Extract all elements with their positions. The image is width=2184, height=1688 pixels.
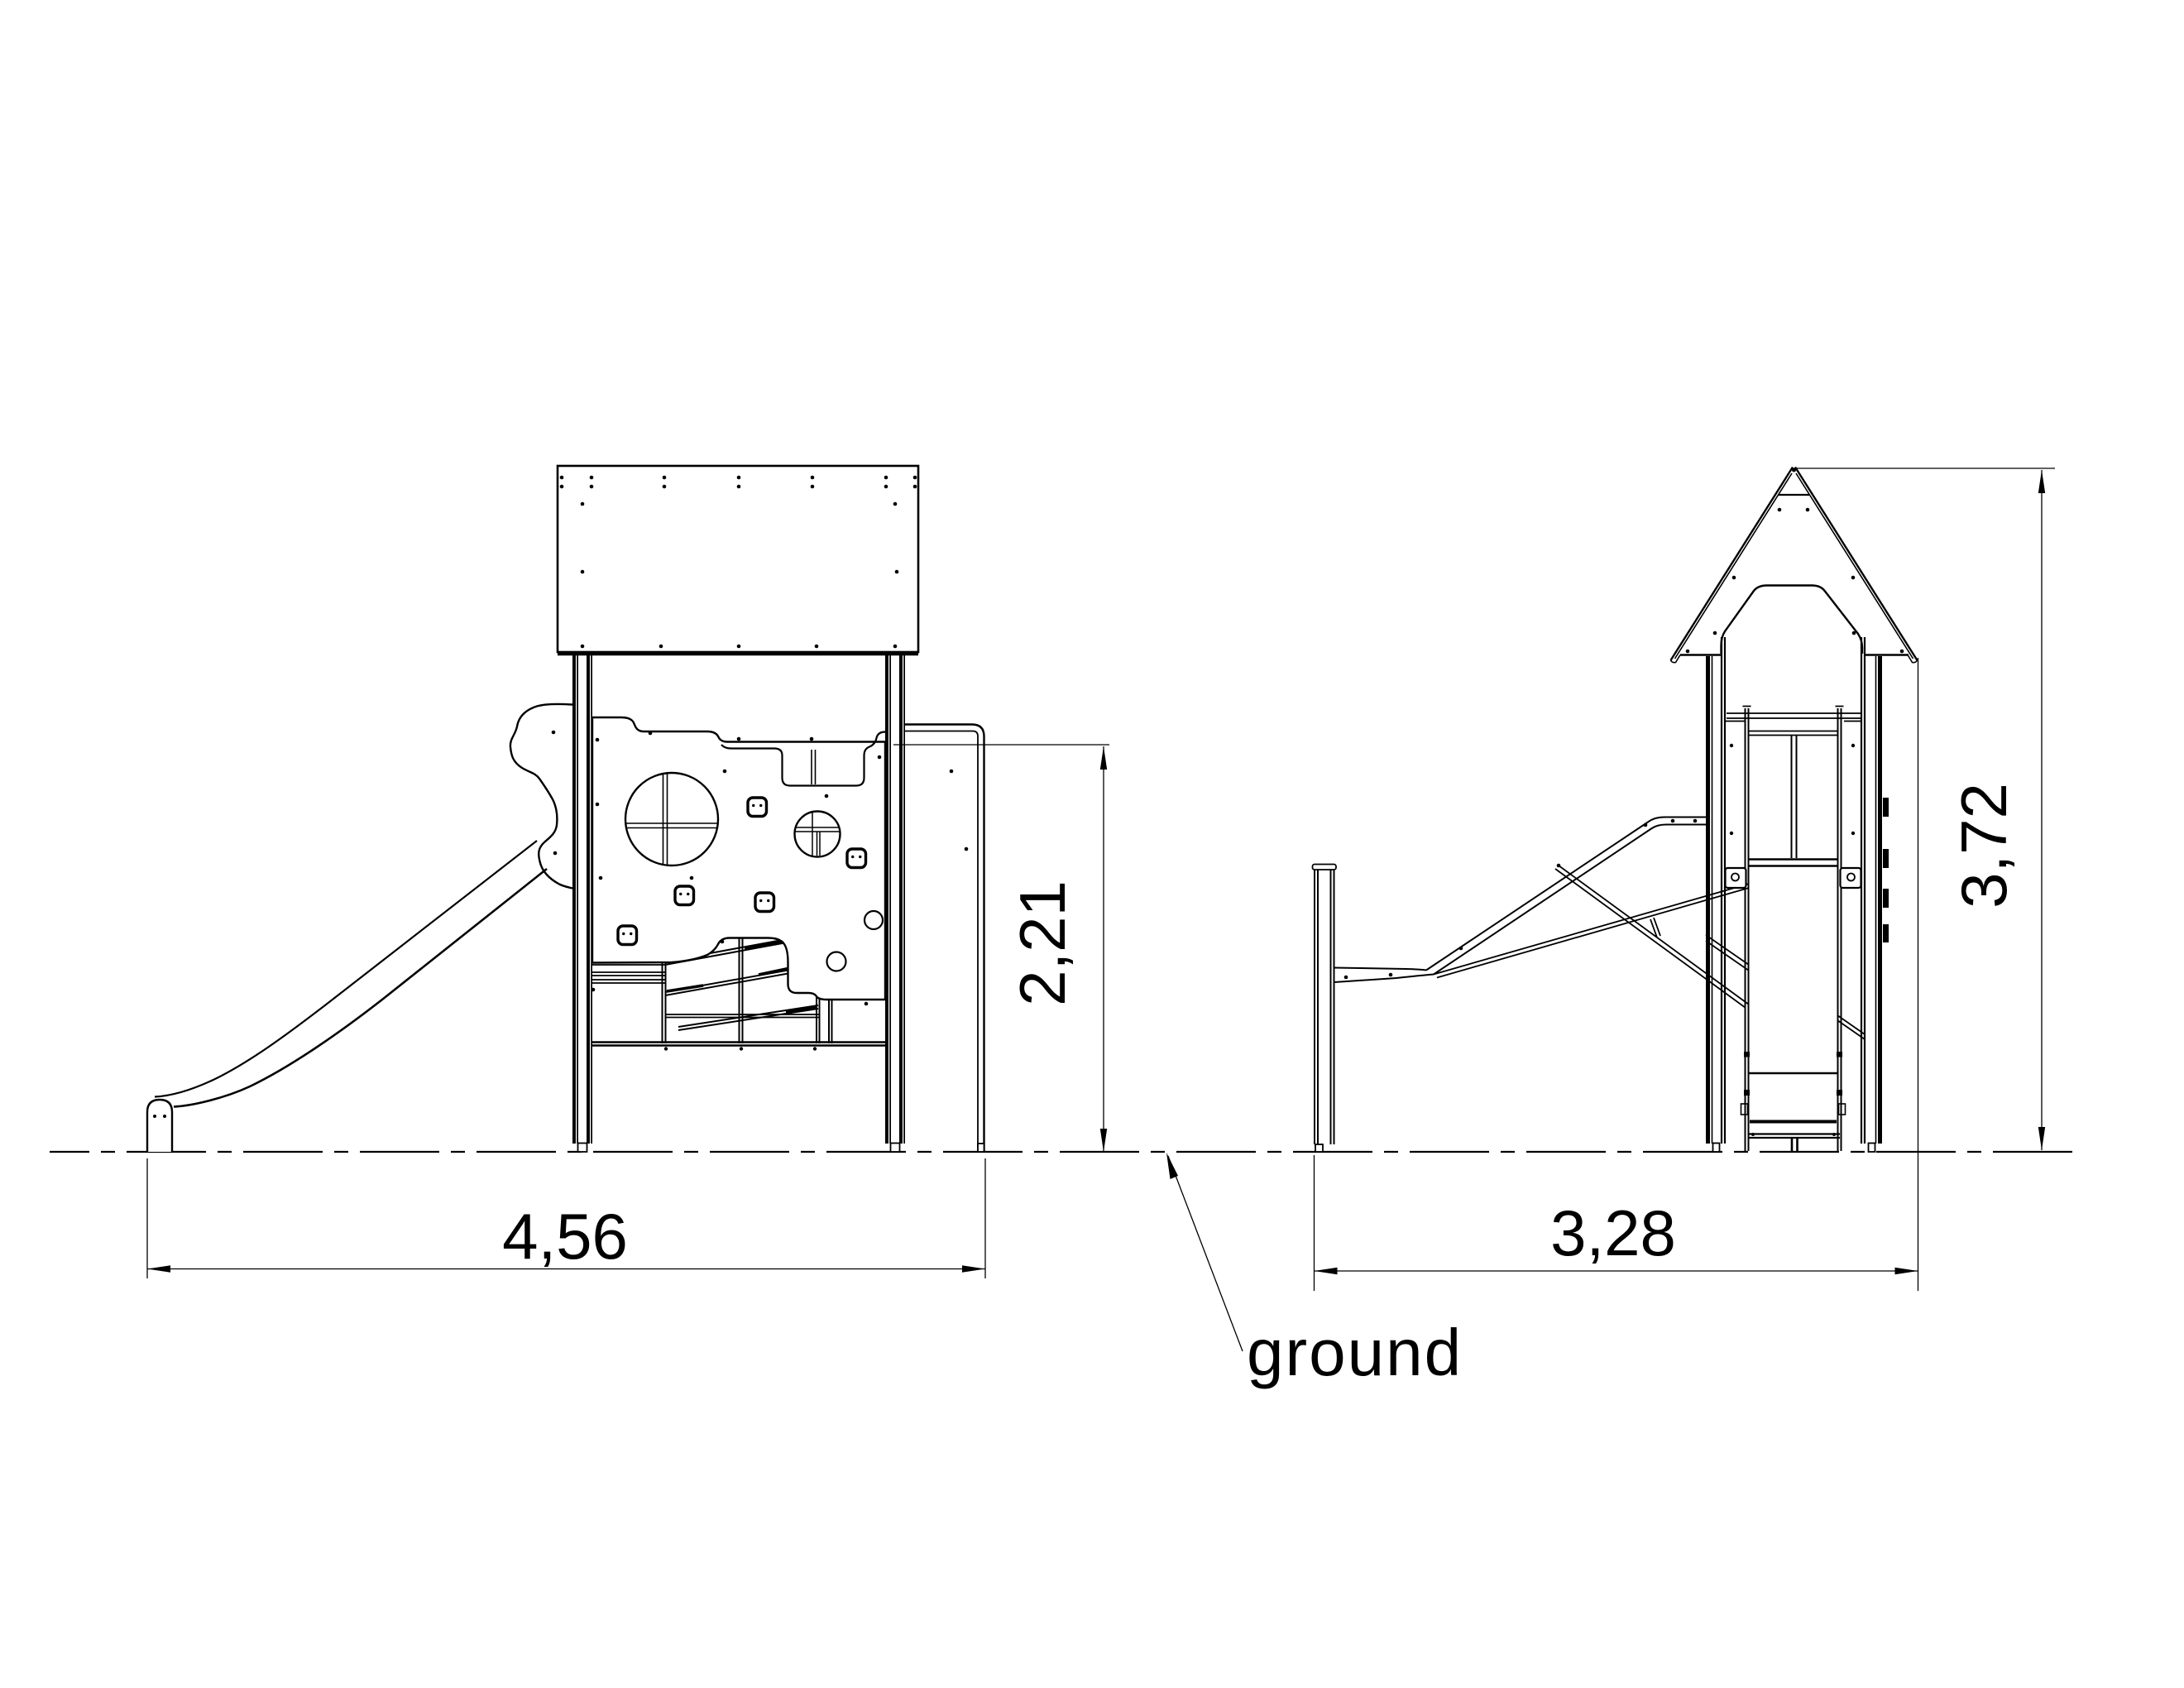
svg-text:3,28: 3,28 [1550, 1196, 1676, 1269]
svg-text:4,56: 4,56 [502, 1200, 628, 1273]
svg-text:ground: ground [1247, 1316, 1463, 1389]
svg-text:2,21: 2,21 [1006, 880, 1079, 1006]
svg-text:3,72: 3,72 [1947, 783, 2020, 909]
